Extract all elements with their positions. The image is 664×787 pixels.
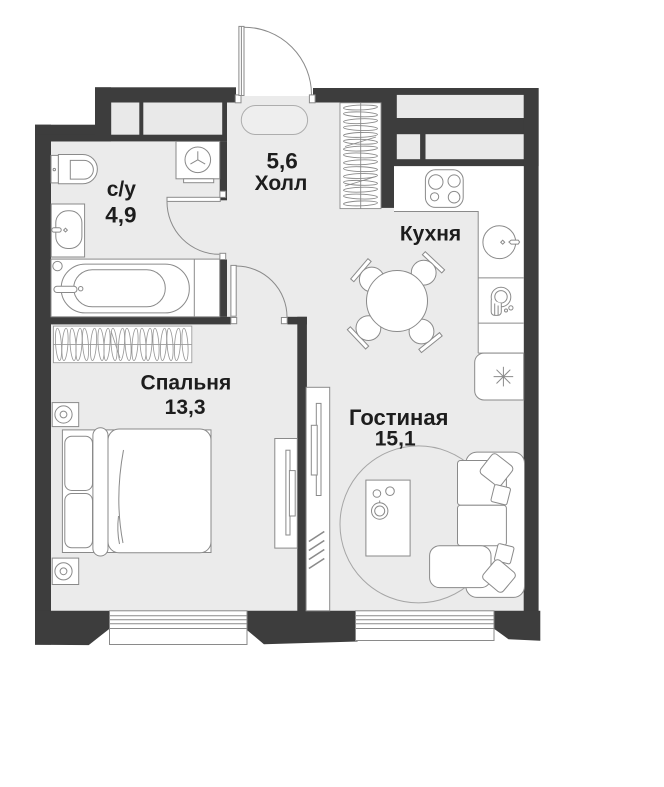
svg-text:Кухня: Кухня xyxy=(400,223,461,246)
svg-text:13,3: 13,3 xyxy=(165,396,206,419)
svg-text:5,6: 5,6 xyxy=(267,149,298,174)
svg-text:Холл: Холл xyxy=(255,172,308,195)
svg-text:15,1: 15,1 xyxy=(375,428,416,451)
svg-text:Гостиная: Гостиная xyxy=(349,405,448,430)
svg-text:4,9: 4,9 xyxy=(105,203,136,228)
svg-text:Спальня: Спальня xyxy=(141,372,232,395)
svg-text:с/у: с/у xyxy=(107,178,137,201)
